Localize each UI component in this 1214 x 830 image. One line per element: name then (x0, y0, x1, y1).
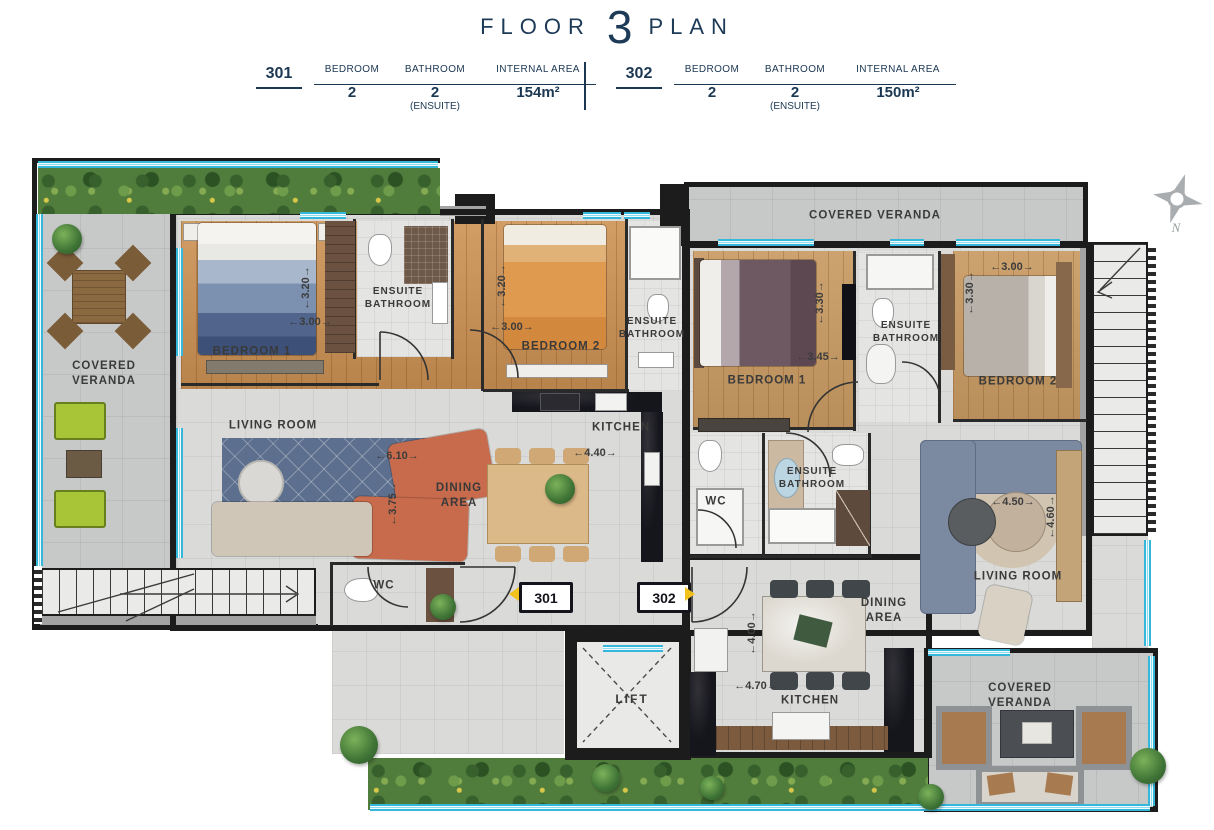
ensuite1-302-label: ENSUITE BATHROOM (860, 319, 952, 345)
bedroom1-302-label: BEDROOM 1 (728, 374, 807, 389)
bedroom2-301-dim-h: ←3.20→ (496, 264, 508, 307)
ensuite2-301-label: ENSUITE BATHROOM (612, 315, 692, 341)
living-302-label: LIVING ROOM (974, 570, 1062, 585)
bedroom2-301-label: BEDROOM 2 (522, 340, 601, 355)
bedroom1-302-dim-h: ←3.30→ (814, 281, 826, 324)
floor-plan-page: FLOOR 3 PLAN 301 BEDROOM 2 BATHROOM 2 (E… (0, 0, 1214, 830)
kitchen-302-dim-w: ←4.70→ (734, 680, 777, 692)
wc-301-label: WC (373, 579, 394, 594)
unit-302-door-badge: 302 (637, 582, 691, 613)
bedroom2-302-label: BEDROOM 2 (979, 375, 1058, 390)
living-302-dim-h: ←4.60→ (1045, 495, 1057, 538)
veranda-left-label: COVERED VERANDA (64, 359, 144, 389)
bedroom1-301-dim-w: ←3.00→ (288, 316, 331, 328)
badge-arrow-icon (509, 587, 519, 601)
veranda-top-302-label: COVERED VERANDA (809, 209, 941, 224)
dining-302-label: DINING AREA (854, 596, 914, 626)
kitchen-302-label: KITCHEN (781, 694, 839, 709)
compass-north-label: N (1172, 220, 1181, 236)
bedroom1-301-dim-h: ←3.20→ (300, 266, 312, 309)
living-301-dim-w: ←6.10→ (375, 450, 418, 462)
kitchen-301-dim-w: ←4.40→ (573, 447, 616, 459)
unit-301-door-badge: 301 (519, 582, 573, 613)
wc-302-label: WC (705, 495, 726, 510)
living-302-dim-w: ←4.50→ (991, 496, 1034, 508)
dining-301-label: DINING AREA (429, 481, 489, 511)
compass-icon (1150, 172, 1204, 226)
living-301-label: LIVING ROOM (229, 419, 317, 434)
veranda-bottom-302-label: COVERED VERANDA (976, 681, 1064, 711)
ensuite2-302-label: ENSUITE BATHROOM (766, 465, 858, 491)
bedroom2-301-dim-w: ←3.00→ (490, 321, 533, 333)
lift-label: LIFT (615, 692, 648, 708)
living-301-dim-h: ←3.75→ (387, 482, 399, 525)
bedroom2-302-dim-h: ←3.30→ (964, 271, 976, 314)
badge-arrow-icon (685, 587, 695, 601)
ensuite1-301-label: ENSUITE BATHROOM (354, 285, 442, 311)
kitchen-301-label: KITCHEN (592, 421, 650, 436)
bedroom1-301-label: BEDROOM 1 (213, 345, 292, 360)
bedroom2-302-dim-w: ←3.00→ (990, 261, 1033, 273)
kitchen-302-dim-h: ←4.00→ (746, 611, 758, 654)
bedroom1-302-dim-w: ←3.45→ (796, 351, 839, 363)
